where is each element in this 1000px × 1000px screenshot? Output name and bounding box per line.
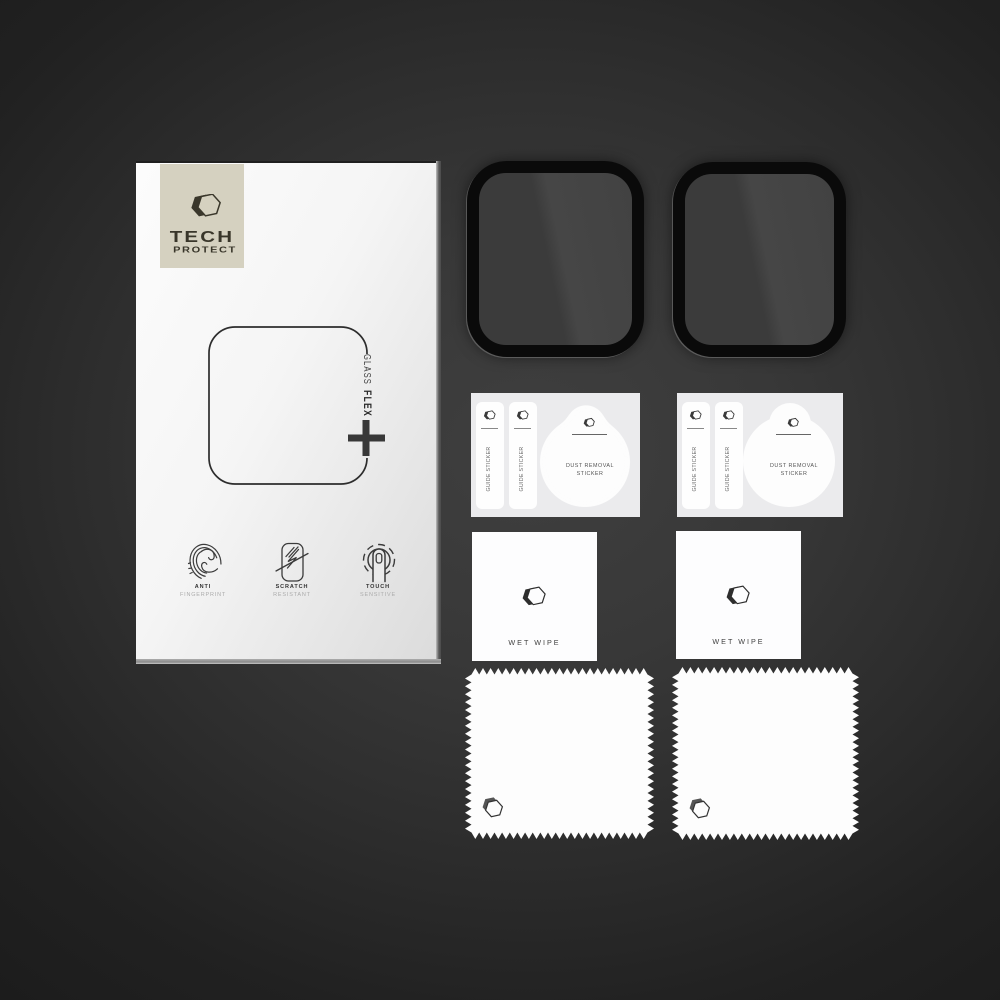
svg-text:GLASS: GLASS	[361, 354, 373, 385]
svg-text:FLEX: FLEX	[361, 390, 373, 417]
